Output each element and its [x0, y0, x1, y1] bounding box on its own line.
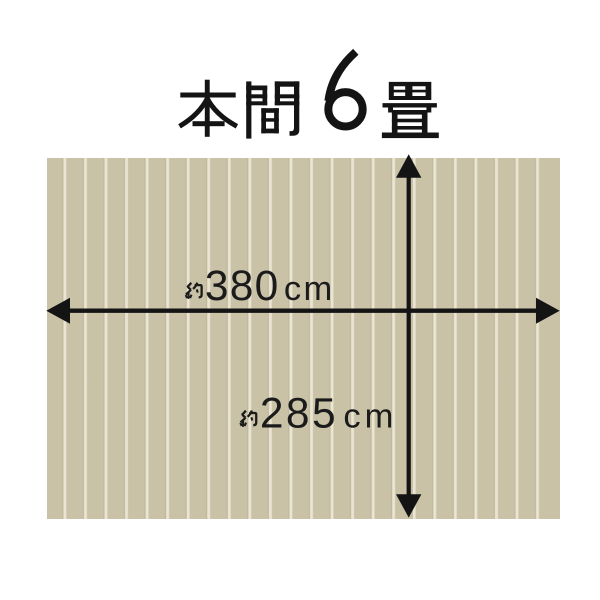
svg-text:380: 380 [205, 263, 280, 310]
svg-text:cm: cm [343, 398, 397, 436]
svg-text:285: 285 [260, 391, 338, 438]
svg-text:cm: cm [284, 270, 335, 308]
